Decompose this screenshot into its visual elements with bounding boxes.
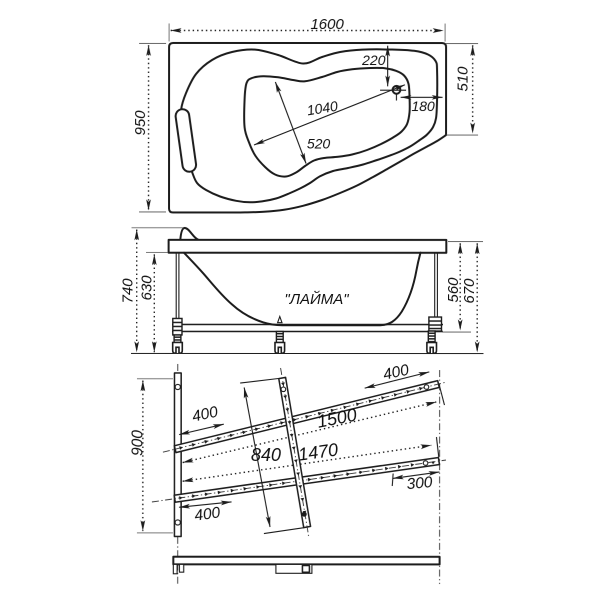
svg-text:950: 950 bbox=[132, 110, 149, 136]
svg-text:520: 520 bbox=[307, 136, 331, 152]
svg-text:560: 560 bbox=[445, 277, 462, 303]
svg-text:840: 840 bbox=[251, 445, 281, 465]
svg-text:670: 670 bbox=[461, 278, 478, 304]
svg-text:1600: 1600 bbox=[310, 16, 344, 33]
svg-text:"ЛАЙМА": "ЛАЙМА" bbox=[284, 290, 349, 308]
svg-text:400: 400 bbox=[193, 504, 221, 524]
svg-text:900: 900 bbox=[129, 430, 146, 456]
svg-text:180: 180 bbox=[411, 98, 435, 114]
svg-text:220: 220 bbox=[361, 52, 386, 68]
svg-text:510: 510 bbox=[455, 66, 472, 92]
svg-text:740: 740 bbox=[119, 278, 136, 304]
svg-text:300: 300 bbox=[406, 474, 434, 493]
svg-text:630: 630 bbox=[138, 275, 155, 301]
